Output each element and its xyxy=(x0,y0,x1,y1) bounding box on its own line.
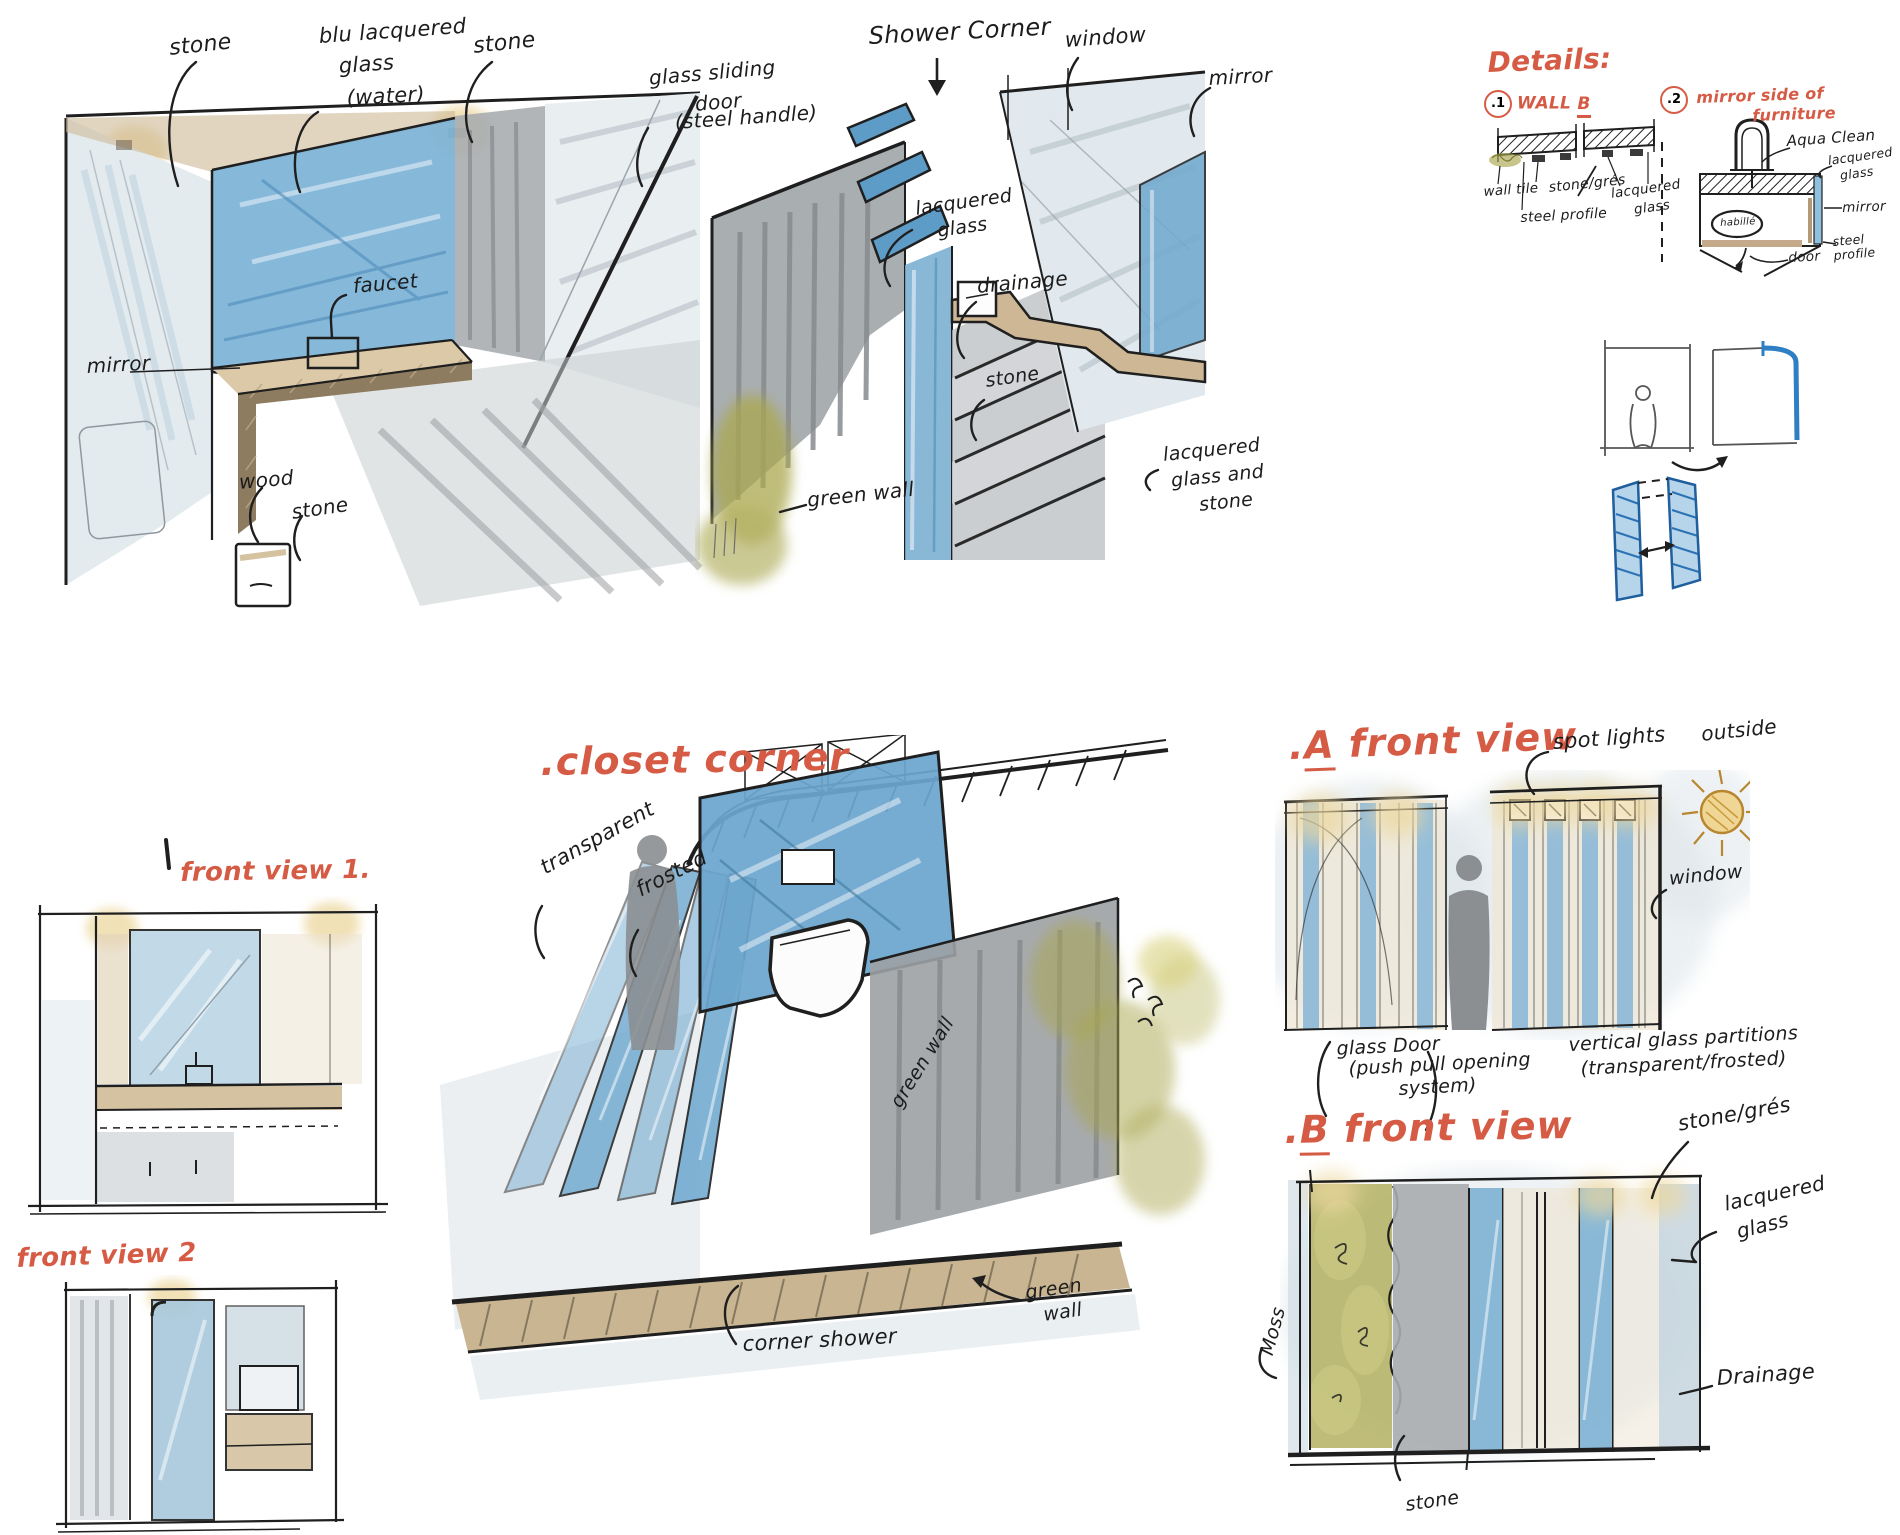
door-diagrams xyxy=(1595,335,1885,615)
label-mirror: mirror xyxy=(1842,198,1886,216)
label-blu-lacquered: blu lacquered xyxy=(318,14,467,48)
a-front-view-title: .A front view xyxy=(1288,714,1578,768)
front-view-2-title: front view 2 xyxy=(16,1238,197,1274)
label-outside: outside xyxy=(1700,714,1778,746)
sketch-canvas: stone blu lacquered glass (water) stone … xyxy=(0,0,1900,1535)
detail-1-number: .1 xyxy=(1484,90,1512,118)
label-stone-gres: stone/grés xyxy=(1676,1092,1793,1135)
detail-2-number: .2 xyxy=(1660,86,1688,114)
front-view-1-sketch xyxy=(20,895,400,1225)
closet-corner-title: .closet corner xyxy=(540,735,850,784)
label-stone: stone xyxy=(168,29,233,60)
shower-corner-sketch xyxy=(695,50,1225,610)
sliding-corner-diagram xyxy=(1613,478,1700,600)
closet-corner-sketch xyxy=(425,735,1240,1425)
detail-2-title-2: furniture xyxy=(1752,103,1836,125)
front-view-1-title: front view 1. xyxy=(180,855,371,888)
label-mirror: mirror xyxy=(86,351,151,378)
toilet xyxy=(770,920,868,1016)
label-mirror: mirror xyxy=(1208,63,1273,90)
panel-with-person xyxy=(1600,340,1694,456)
label-blu-lacquered-2: glass xyxy=(338,50,395,78)
label-shower-corner-title: Shower Corner xyxy=(868,12,1051,49)
detail-1-title: WALL B xyxy=(1517,94,1591,118)
label-lacquered-glass-2: glass xyxy=(1734,1207,1791,1243)
vanity-corner-sketch xyxy=(55,85,705,615)
label-blu-lacquered-3: (water) xyxy=(346,82,425,110)
label-stone: stone xyxy=(472,27,537,58)
moss-panel xyxy=(1309,1184,1401,1450)
label-stone: stone xyxy=(1404,1486,1461,1515)
label-door: door xyxy=(1788,248,1821,266)
front-view-2-sketch xyxy=(50,1275,345,1535)
label-wood: wood xyxy=(238,465,295,494)
label-window: window xyxy=(1064,22,1147,52)
label-glass-door-3: system) xyxy=(1398,1074,1477,1100)
a-front-view-sketch xyxy=(1275,770,1750,1040)
label-drainage: Drainage xyxy=(1716,1359,1816,1390)
details-title: Details: xyxy=(1487,42,1612,79)
panel-with-blue-corner xyxy=(1713,341,1797,445)
wood-drawer xyxy=(236,544,290,606)
label-lacquered-glass-stone-3: stone xyxy=(1198,488,1254,516)
b-front-view-title: .B front view xyxy=(1284,1103,1573,1152)
b-front-view-sketch xyxy=(1280,1160,1710,1470)
label-oval-note: habillé xyxy=(1720,216,1756,229)
